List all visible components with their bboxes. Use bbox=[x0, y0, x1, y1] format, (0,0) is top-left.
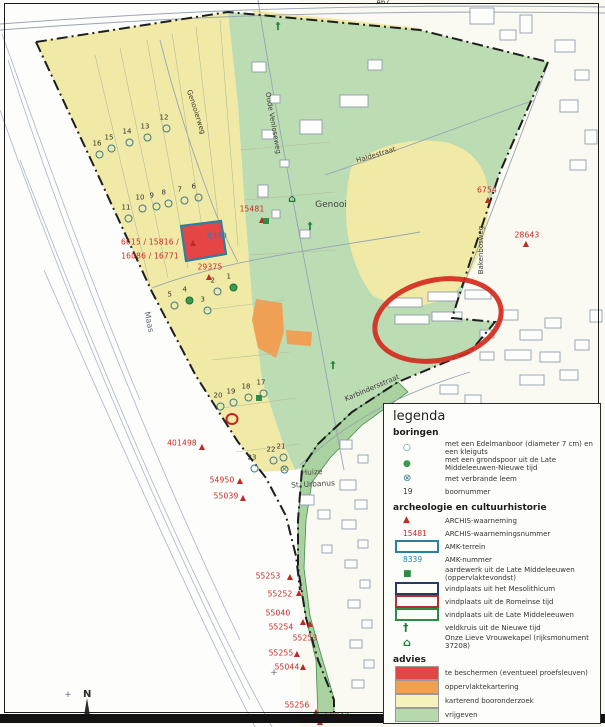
borehole-marker: 16 bbox=[96, 151, 103, 158]
legend-label: ARCHIS-waarnemingsnummer bbox=[445, 530, 550, 538]
legend-rows: boringen ○ met een Edelmanboor (diameter… bbox=[393, 427, 597, 722]
legend-label: met een grondspoor uit de Late Middeleeu… bbox=[445, 456, 597, 472]
borehole-circle-icon bbox=[186, 297, 194, 305]
archis-number-label: 6615 / 15816 / bbox=[121, 238, 179, 247]
borehole-marker: 15 bbox=[108, 145, 115, 152]
archis-number-label: 15481 bbox=[240, 205, 265, 214]
scanned-map-page: A67GenooierwegOude VenlosewegHaldestraat… bbox=[0, 0, 605, 727]
borehole-marker: 19 bbox=[230, 399, 237, 406]
legend-label: ARCHIS-waarneming bbox=[445, 517, 517, 525]
borehole-marker: 4 bbox=[186, 297, 193, 304]
archis-triangle-icon bbox=[485, 196, 491, 204]
legend-label: oppervlaktekartering bbox=[445, 683, 519, 691]
borehole-circle-icon bbox=[230, 284, 238, 292]
legend-label: vindplaats uit het Mesolithicum bbox=[445, 585, 555, 593]
legend-title: legenda bbox=[393, 409, 597, 424]
borehole-number: 13 bbox=[141, 123, 150, 131]
street-label: Genooierweg bbox=[185, 89, 207, 136]
borehole-circle-icon bbox=[153, 203, 161, 211]
legend-label: boornummer bbox=[445, 488, 490, 496]
archis-triangle-icon bbox=[237, 477, 243, 485]
archis-number-label: 16086 / 16771 bbox=[121, 252, 179, 261]
archis-number-label: 55039 bbox=[214, 492, 239, 501]
map-symbol-icon bbox=[256, 395, 262, 401]
borehole-number: 15 bbox=[105, 134, 114, 142]
borehole-circle-icon bbox=[165, 200, 173, 208]
legend-symbol: ○ bbox=[393, 444, 439, 453]
legend-symbol bbox=[393, 608, 439, 621]
archis-triangle-icon bbox=[199, 443, 205, 451]
borehole-circle-icon bbox=[230, 399, 238, 407]
borehole-circle-icon bbox=[251, 465, 259, 473]
legend-label: AMK-nummer bbox=[445, 556, 492, 564]
legend-symbol: ● bbox=[393, 460, 439, 469]
borehole-marker: 11 bbox=[125, 215, 132, 222]
archis-triangle-icon bbox=[523, 240, 529, 248]
legend-row: ⊗ met verbrande leem bbox=[393, 472, 597, 485]
legend-row: archeologie en cultuurhistorie bbox=[393, 501, 597, 514]
legend-panel: legenda boringen ○ met een Edelmanboor (… bbox=[383, 403, 601, 724]
map-symbol-icon bbox=[270, 662, 278, 678]
legend-row: advies bbox=[393, 653, 597, 666]
borehole-marker: 13 bbox=[144, 134, 151, 141]
borehole-circle-icon bbox=[139, 205, 147, 213]
archis-triangle-icon bbox=[296, 589, 302, 597]
archis-number-label: 55253 bbox=[293, 634, 318, 643]
legend-symbol: ⌂ bbox=[393, 637, 439, 648]
borehole-marker: 6 bbox=[195, 194, 202, 201]
borehole-marker: 1 bbox=[230, 284, 237, 291]
borehole-circle-icon bbox=[163, 125, 171, 133]
borehole-marker: 14 bbox=[126, 139, 133, 146]
street-label: A67 bbox=[376, 0, 390, 6]
legend-row: vrijgeven bbox=[393, 708, 597, 722]
legend-label: vindplaats uit de Late Middeleeuwen bbox=[445, 611, 574, 619]
borehole-number: 9 bbox=[150, 192, 154, 200]
legend-row: karterend booronderzoek bbox=[393, 694, 597, 708]
map-symbol-icon bbox=[288, 189, 296, 205]
borehole-number: 3 bbox=[201, 296, 205, 304]
legend-row: ▲ ARCHIS-waarneming bbox=[393, 514, 597, 527]
borehole-circle-icon bbox=[195, 194, 203, 202]
borehole-circle-icon bbox=[217, 403, 225, 411]
borehole-number: 11 bbox=[122, 204, 131, 212]
borehole-circle-icon bbox=[204, 307, 212, 315]
borehole-number: 6 bbox=[192, 183, 196, 191]
legend-symbol: 8339 bbox=[393, 556, 439, 564]
map-symbol-icon bbox=[263, 218, 269, 224]
archis-triangle-icon bbox=[190, 239, 196, 247]
legend-label: vrijgeven bbox=[445, 711, 478, 719]
map-symbol-icon bbox=[226, 413, 239, 425]
street-label: Bakenbosweg bbox=[477, 226, 485, 275]
borehole-number: 12 bbox=[160, 114, 169, 122]
borehole-marker: 7 bbox=[181, 197, 188, 204]
legend-symbol: † bbox=[393, 622, 439, 633]
borehole-number: 22 bbox=[267, 446, 276, 454]
archis-number-label: 55040 bbox=[266, 609, 291, 618]
borehole-marker: 22 bbox=[270, 457, 277, 464]
legend-symbol bbox=[393, 582, 439, 595]
archis-triangle-icon bbox=[294, 650, 300, 658]
legend-row: ⌂ Onze Lieve Vrouwekapel (rijksmonument … bbox=[393, 634, 597, 650]
borehole-number: 21 bbox=[277, 443, 286, 451]
borehole-circle-icon bbox=[125, 215, 133, 223]
borehole-marker: 21 bbox=[280, 454, 287, 461]
legend-label: archeologie en cultuurhistorie bbox=[393, 503, 547, 513]
archis-number-label: 401498 bbox=[167, 439, 197, 448]
archis-number-label: 55253 bbox=[256, 572, 281, 581]
archis-number-label: 55252 bbox=[268, 590, 293, 599]
borehole-number: 10 bbox=[136, 194, 145, 202]
borehole-circle-icon bbox=[171, 302, 179, 310]
street-label: Oude Venloseweg bbox=[264, 91, 283, 154]
legend-label: boringen bbox=[393, 428, 439, 438]
borehole-number: 18 bbox=[242, 383, 251, 391]
borehole-circle-icon bbox=[144, 134, 152, 142]
legend-symbol: ■ bbox=[393, 570, 439, 579]
legend-label: te beschermen (eventueel proefsleuven) bbox=[445, 669, 588, 677]
legend-label: Onze Lieve Vrouwekapel (rijksmonument 37… bbox=[445, 634, 597, 650]
legend-row: ○ met een Edelmanboor (diameter 7 cm) en… bbox=[393, 440, 597, 456]
legend-row: te beschermen (eventueel proefsleuven) bbox=[393, 666, 597, 680]
legend-label: advies bbox=[393, 655, 426, 665]
map-symbol-icon bbox=[64, 684, 72, 700]
borehole-circle-icon bbox=[96, 151, 104, 159]
legend-symbol bbox=[393, 595, 439, 608]
archis-triangle-icon bbox=[307, 620, 313, 628]
legend-label: vindplaats uit de Romeinse tijd bbox=[445, 598, 553, 606]
archis-triangle-icon bbox=[300, 663, 306, 671]
north-label: N bbox=[83, 689, 91, 700]
borehole-circle-icon bbox=[214, 288, 222, 296]
borehole-number: 19 bbox=[227, 388, 236, 396]
borehole-circle-icon bbox=[245, 394, 253, 402]
legend-row: boringen bbox=[393, 427, 597, 440]
borehole-circle-icon bbox=[126, 139, 134, 147]
archis-triangle-icon bbox=[287, 573, 293, 581]
legend-row: vindplaats uit de Late Middeleeuwen bbox=[393, 608, 597, 621]
legend-label: aardewerk uit de Late Middeleeuwen (oppe… bbox=[445, 566, 597, 582]
borehole-number: 8 bbox=[162, 189, 166, 197]
borehole-number: 17 bbox=[257, 379, 266, 387]
borehole-circle-icon bbox=[280, 454, 288, 462]
borehole-number: 7 bbox=[178, 186, 182, 194]
legend-row: ■ aardewerk uit de Late Middeleeuwen (op… bbox=[393, 566, 597, 582]
archis-number-label: 55044 bbox=[275, 663, 300, 672]
borehole-circle-icon bbox=[281, 466, 289, 474]
legend-row: 8339 AMK-nummer bbox=[393, 553, 597, 566]
borehole-number: 14 bbox=[123, 128, 132, 136]
borehole-number: 4 bbox=[183, 286, 187, 294]
legend-symbol: 19 bbox=[393, 488, 439, 496]
legend-row: vindplaats uit de Romeinse tijd bbox=[393, 595, 597, 608]
borehole-number: 23 bbox=[248, 454, 257, 462]
legend-row: † veldkruis uit de Nieuwe tijd bbox=[393, 621, 597, 634]
legend-label: karterend booronderzoek bbox=[445, 697, 534, 705]
street-label: Karbindersstraat bbox=[344, 373, 401, 403]
street-label: Huize bbox=[301, 467, 322, 477]
borehole-marker bbox=[281, 466, 288, 473]
borehole-marker: 20 bbox=[217, 403, 224, 410]
borehole-number: 1 bbox=[227, 273, 231, 281]
legend-symbol: 15481 bbox=[393, 530, 439, 538]
archis-number-label: 8339 bbox=[207, 232, 227, 241]
borehole-marker: 12 bbox=[163, 125, 170, 132]
archis-triangle-icon bbox=[300, 618, 306, 626]
borehole-number: 16 bbox=[93, 140, 102, 148]
street-label: St. Urbanus bbox=[291, 478, 335, 489]
archis-number-label: 6754 bbox=[477, 186, 497, 195]
borehole-marker: 8 bbox=[165, 200, 172, 207]
legend-symbol bbox=[393, 680, 439, 694]
borehole-marker: 23 bbox=[251, 465, 258, 472]
legend-symbol: ▲ bbox=[393, 516, 439, 525]
legend-label: met een Edelmanboor (diameter 7 cm) en e… bbox=[445, 440, 597, 456]
borehole-marker: 18 bbox=[245, 394, 252, 401]
legend-row: vindplaats uit het Mesolithicum bbox=[393, 582, 597, 595]
legend-symbol bbox=[393, 666, 439, 680]
legend-label: AMK-terrein bbox=[445, 543, 485, 551]
archis-number-label: 29375 bbox=[198, 263, 223, 272]
legend-row: AMK-terrein bbox=[393, 540, 597, 553]
borehole-marker: 3 bbox=[204, 307, 211, 314]
borehole-circle-icon bbox=[270, 457, 278, 465]
borehole-marker: 10 bbox=[139, 205, 146, 212]
borehole-circle-icon bbox=[108, 145, 116, 153]
map-symbol-icon bbox=[276, 16, 281, 32]
legend-label: veldkruis uit de Nieuwe tijd bbox=[445, 624, 541, 632]
borehole-circle-icon bbox=[181, 197, 189, 205]
borehole-number: 2 bbox=[211, 277, 215, 285]
legend-label: met verbrande leem bbox=[445, 475, 517, 483]
street-label: Maas bbox=[142, 311, 155, 333]
legend-row: ● met een grondspoor uit de Late Middele… bbox=[393, 456, 597, 472]
legend-symbol: ⊗ bbox=[393, 474, 439, 484]
archis-number-label: 54950 bbox=[210, 476, 235, 485]
legend-row: 15481 ARCHIS-waarnemingsnummer bbox=[393, 527, 597, 540]
borehole-number: 20 bbox=[214, 392, 223, 400]
legend-symbol bbox=[393, 708, 439, 722]
map-symbol-icon bbox=[331, 355, 336, 371]
archis-number-label: 55256 bbox=[285, 701, 310, 710]
street-label: Haldestraat bbox=[355, 145, 396, 165]
borehole-marker: 9 bbox=[153, 203, 160, 210]
archis-number-label: 55255 bbox=[269, 649, 294, 658]
archis-triangle-icon bbox=[240, 494, 246, 502]
legend-symbol bbox=[393, 694, 439, 708]
borehole-marker: 5 bbox=[171, 302, 178, 309]
borehole-number: 5 bbox=[168, 291, 172, 299]
map-symbol-icon bbox=[308, 216, 313, 232]
borehole-marker: 2 bbox=[214, 288, 221, 295]
street-label: Genooi bbox=[315, 200, 347, 210]
legend-row: 19 boornummer bbox=[393, 485, 597, 498]
legend-row: oppervlaktekartering bbox=[393, 680, 597, 694]
archis-number-label: 55254 bbox=[269, 623, 294, 632]
legend-symbol bbox=[393, 540, 439, 553]
